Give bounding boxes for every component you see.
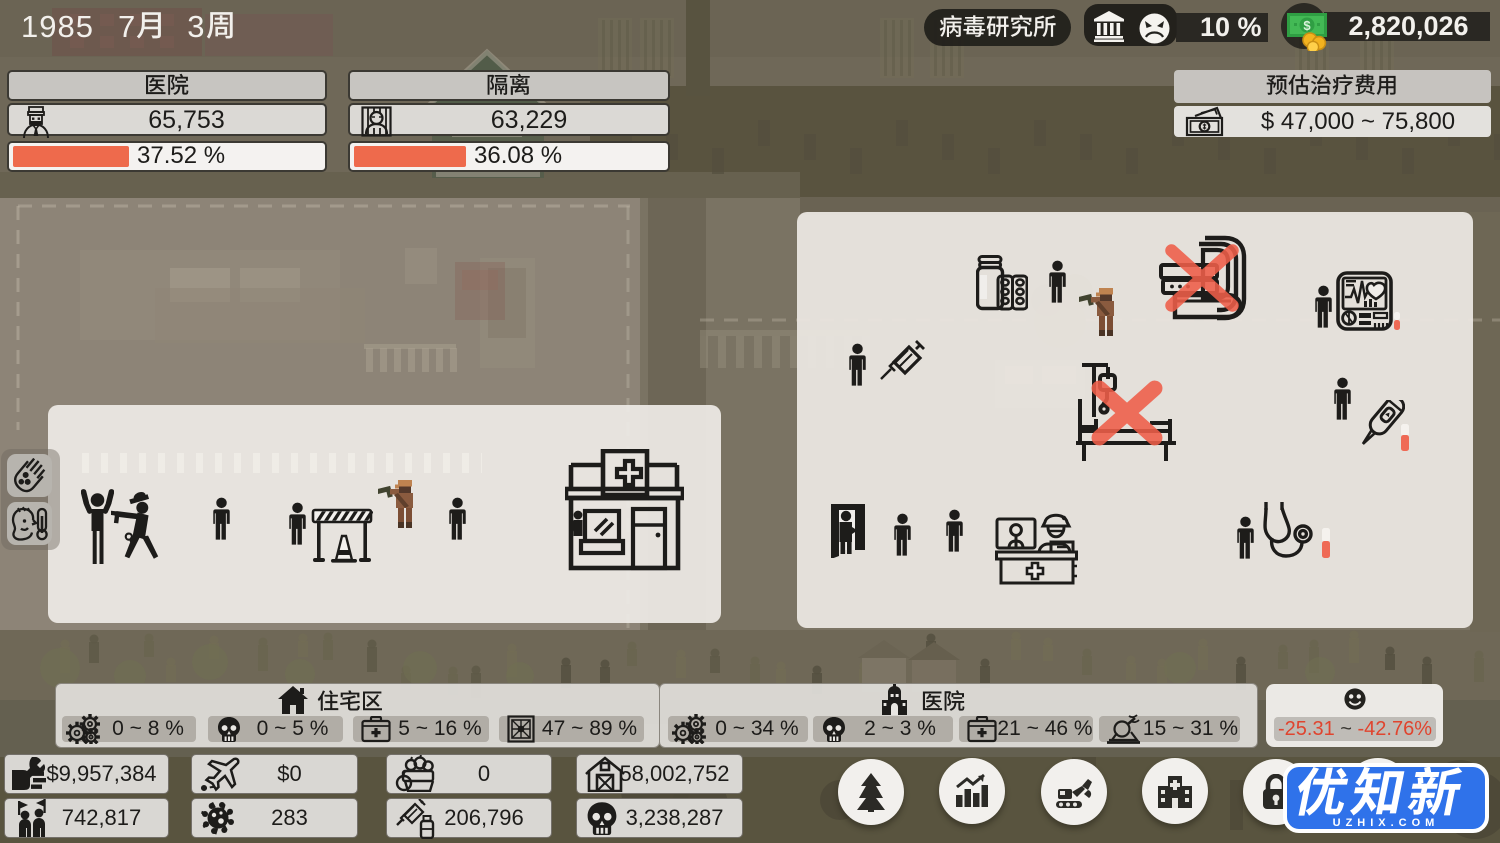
svg-text:$: $: [1303, 18, 1311, 33]
